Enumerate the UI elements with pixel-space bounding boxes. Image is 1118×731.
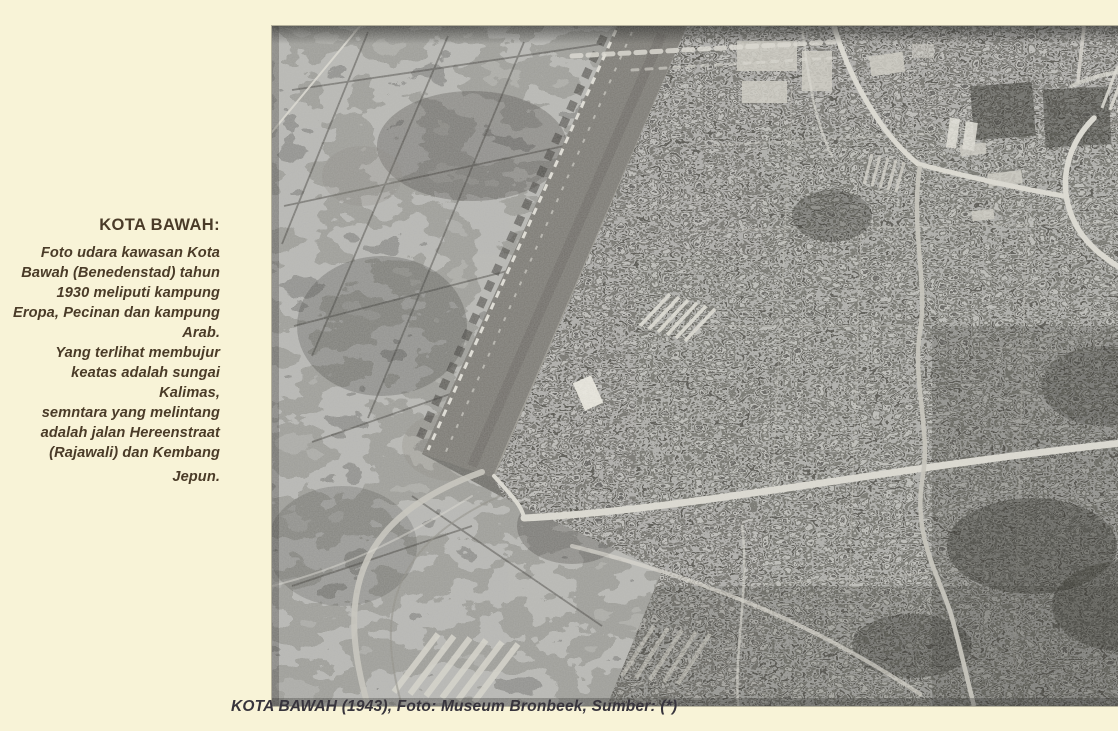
sidebar-description-line: Bawah (Benedenstad) tahun [8, 263, 220, 283]
sidebar-title: KOTA BAWAH: [8, 216, 220, 235]
sidebar-description-line: 1930 meliputi kampung [8, 283, 220, 303]
photo-grain [272, 26, 1118, 706]
aerial-photo-svg [272, 26, 1118, 706]
sidebar-description-line: Yang terlihat membujur [8, 343, 220, 363]
sidebar-description: Foto udara kawasan KotaBawah (Benedensta… [8, 243, 220, 487]
scanned-page: KOTA BAWAH: Foto udara kawasan KotaBawah… [0, 0, 1118, 731]
sidebar-caption-block: KOTA BAWAH: Foto udara kawasan KotaBawah… [8, 216, 220, 487]
sidebar-description-line: adalah jalan Hereenstraat [8, 423, 220, 443]
sidebar-description-line: keatas adalah sungai Kalimas, [8, 363, 220, 403]
sidebar-description-line: Arab. [8, 323, 220, 343]
sidebar-description-line: Eropa, Pecinan dan kampung [8, 303, 220, 323]
photo-caption: KOTA BAWAH (1943), Foto: Museum Bronbeek… [231, 698, 677, 716]
sidebar-description-line: Jepun. [8, 467, 220, 487]
sidebar-description-line: (Rajawali) dan Kembang [8, 443, 220, 463]
sidebar-description-line: Foto udara kawasan Kota [8, 243, 220, 263]
sidebar-description-line: semntara yang melintang [8, 403, 220, 423]
aerial-photo [272, 26, 1118, 706]
